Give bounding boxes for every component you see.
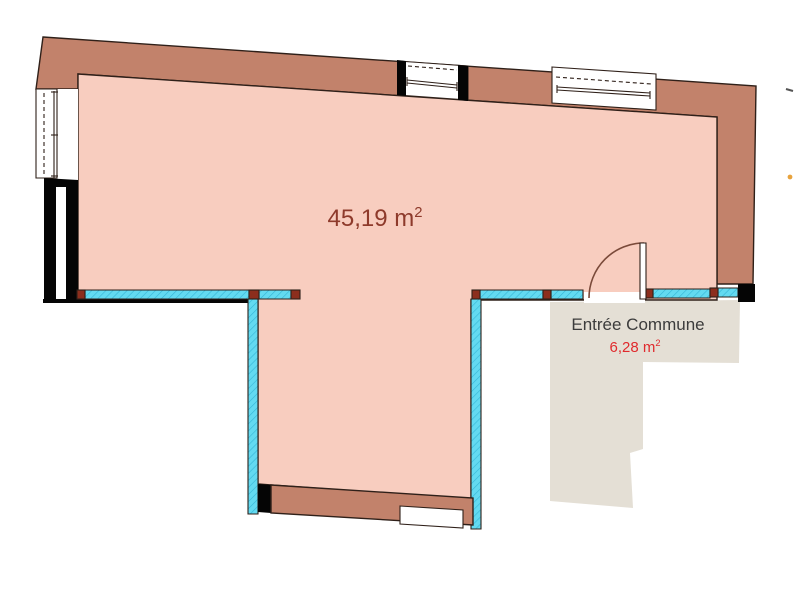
- left-arm-floor-edge: [43, 299, 249, 303]
- entrance-area-value: 6,28 m: [609, 339, 655, 356]
- main-room-area-label: 45,19 m2: [275, 205, 475, 233]
- main-room-area-value: 45,19 m: [328, 205, 415, 232]
- sill-marker-3: [291, 290, 300, 299]
- door-opening-threshold: [584, 292, 645, 303]
- top-window-1-left-jamb: [397, 60, 406, 96]
- door-leaf: [640, 243, 646, 299]
- glazing-strip-right-arm-a: [480, 290, 543, 299]
- sill-marker-7: [710, 288, 718, 297]
- left-window-reveal: [57, 89, 78, 180]
- glazing-strip-left-arm-b: [259, 290, 291, 299]
- entrance-area-label: 6,28 m2: [535, 338, 735, 356]
- entrance-area-exponent: 2: [655, 338, 660, 348]
- right-corner-wall-block: [738, 284, 755, 302]
- edge-mark-dot: [788, 175, 793, 180]
- glazing-strip-right-arm-c: [653, 289, 710, 298]
- sill-marker-5: [543, 290, 551, 299]
- glazing-strip-right-arm-d: [718, 288, 738, 297]
- stem-corner-wall-block: [258, 484, 271, 513]
- floor-plan-svg: [0, 0, 800, 600]
- left-wall-cavity: [56, 187, 66, 299]
- sill-marker-1: [77, 290, 85, 299]
- stem-bottom-opening: [400, 506, 463, 528]
- glazing-strip-stem-right: [471, 299, 481, 529]
- entrance-name-text: Entrée Commune: [571, 315, 704, 334]
- top-window-2: [552, 67, 656, 110]
- floor-plan-canvas: 45,19 m2 Entrée Commune 6,28 m2: [0, 0, 800, 600]
- sill-marker-4: [472, 290, 480, 299]
- glazing-strip-stem-left: [248, 299, 258, 514]
- top-window-1-right-jamb: [458, 65, 468, 101]
- glazing-strip-right-arm-b: [551, 290, 583, 299]
- sill-marker-2: [249, 290, 259, 299]
- main-room-area-exponent: 2: [414, 205, 422, 221]
- entrance-name-label: Entrée Commune: [538, 315, 738, 335]
- edge-mark-dash: [786, 89, 793, 91]
- glazing-strip-left-arm-a: [85, 290, 249, 299]
